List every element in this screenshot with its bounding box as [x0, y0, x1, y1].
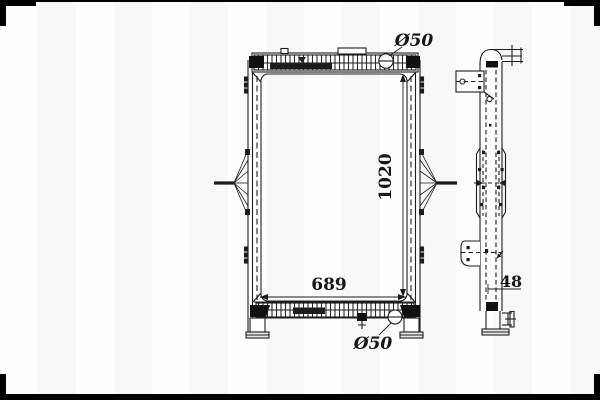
upper-bracket [456, 71, 494, 102]
side-bottom-outlet [486, 302, 516, 327]
width-label: 689 [311, 275, 347, 295]
top-inlet-pipe [486, 45, 523, 68]
frame-bottom-bar [0, 394, 600, 400]
left-foot [246, 318, 269, 338]
radiator-drawing: Ø50 1020 689 Ø50 [0, 0, 600, 400]
height-label: 1020 [376, 153, 396, 200]
frame-corner-bottom-left [0, 374, 6, 400]
right-side-channel [411, 60, 424, 336]
right-mount-bracket [419, 149, 457, 216]
side-view [456, 45, 523, 335]
drawing-canvas: Ø50 1020 689 Ø50 [0, 0, 600, 400]
top-tank [249, 48, 420, 72]
depth-label: 48 [500, 272, 522, 291]
frame-corner-top-left [0, 0, 36, 26]
bottom-tank [250, 302, 420, 329]
right-foot [400, 318, 423, 338]
frame-corner-top-right [564, 0, 600, 26]
drain-plug [357, 313, 367, 329]
frame-corner-bottom-right [594, 374, 600, 400]
top-filler-port [379, 54, 393, 68]
middle-fastener-assembly [474, 148, 508, 218]
left-side-channel [245, 60, 258, 336]
lower-bracket [461, 241, 503, 266]
left-mount-bracket [214, 149, 250, 216]
bottom-outlet-port [388, 310, 402, 324]
side-foot [482, 311, 509, 335]
frame-top-line [0, 0, 600, 2]
bottom-port-label: Ø50 [353, 334, 393, 354]
dim-height [400, 74, 406, 297]
top-port-label: Ø50 [394, 31, 434, 51]
